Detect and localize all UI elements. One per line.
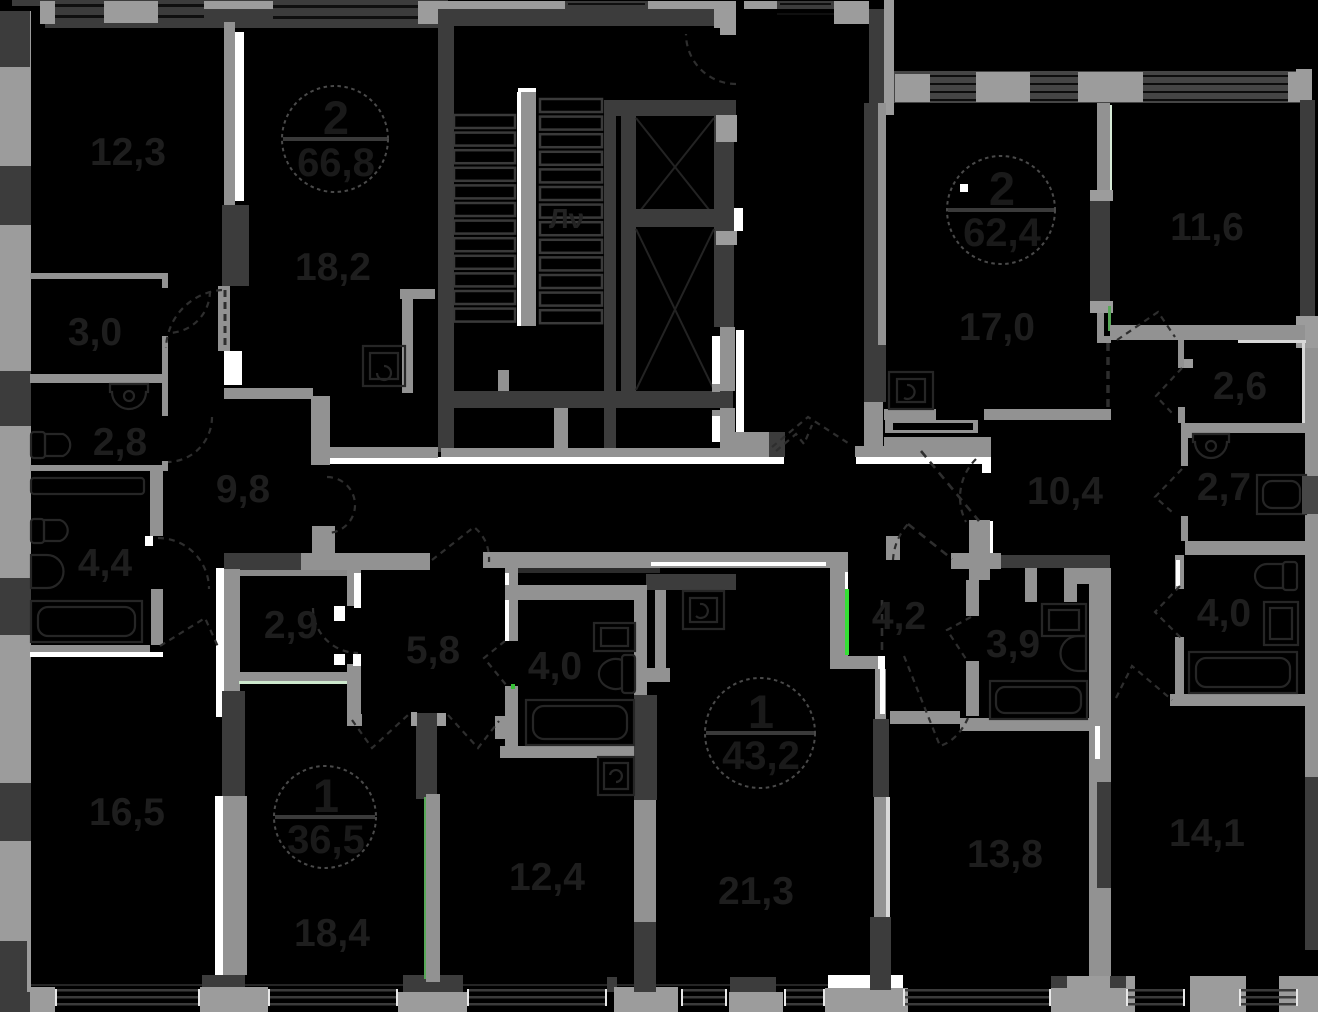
svg-text:62,4: 62,4	[963, 211, 1042, 255]
svg-text:17,0: 17,0	[959, 306, 1035, 349]
svg-text:4,0: 4,0	[1197, 592, 1251, 635]
svg-text:1: 1	[748, 685, 774, 738]
svg-text:21,3: 21,3	[718, 870, 794, 913]
svg-text:9,8: 9,8	[216, 468, 270, 511]
svg-text:4,2: 4,2	[872, 595, 926, 638]
svg-text:4,4: 4,4	[78, 542, 133, 585]
svg-text:43,2: 43,2	[722, 734, 800, 778]
svg-text:66,8: 66,8	[297, 141, 375, 185]
svg-text:16,5: 16,5	[89, 791, 165, 834]
svg-text:2,8: 2,8	[93, 421, 147, 464]
svg-text:18,2: 18,2	[295, 246, 371, 289]
svg-text:10,4: 10,4	[1027, 470, 1103, 513]
svg-text:11,6: 11,6	[1170, 206, 1244, 249]
svg-text:2,7: 2,7	[1197, 466, 1251, 509]
svg-text:Лν: Лν	[549, 203, 584, 234]
svg-text:2,6: 2,6	[1213, 365, 1267, 408]
svg-text:1: 1	[313, 769, 339, 822]
svg-text:12,4: 12,4	[509, 856, 585, 899]
svg-text:12,3: 12,3	[90, 131, 166, 174]
svg-text:2,9: 2,9	[264, 604, 318, 647]
svg-text:36,5: 36,5	[287, 818, 365, 862]
svg-text:18,4: 18,4	[294, 912, 370, 955]
svg-text:14,1: 14,1	[1169, 812, 1245, 855]
svg-text:3,9: 3,9	[986, 623, 1040, 666]
svg-text:13,8: 13,8	[967, 833, 1043, 876]
svg-text:5,8: 5,8	[406, 629, 460, 672]
svg-text:2: 2	[323, 91, 349, 144]
svg-text:3,0: 3,0	[68, 311, 122, 354]
svg-text:4,0: 4,0	[528, 645, 582, 688]
svg-text:2: 2	[989, 162, 1015, 215]
